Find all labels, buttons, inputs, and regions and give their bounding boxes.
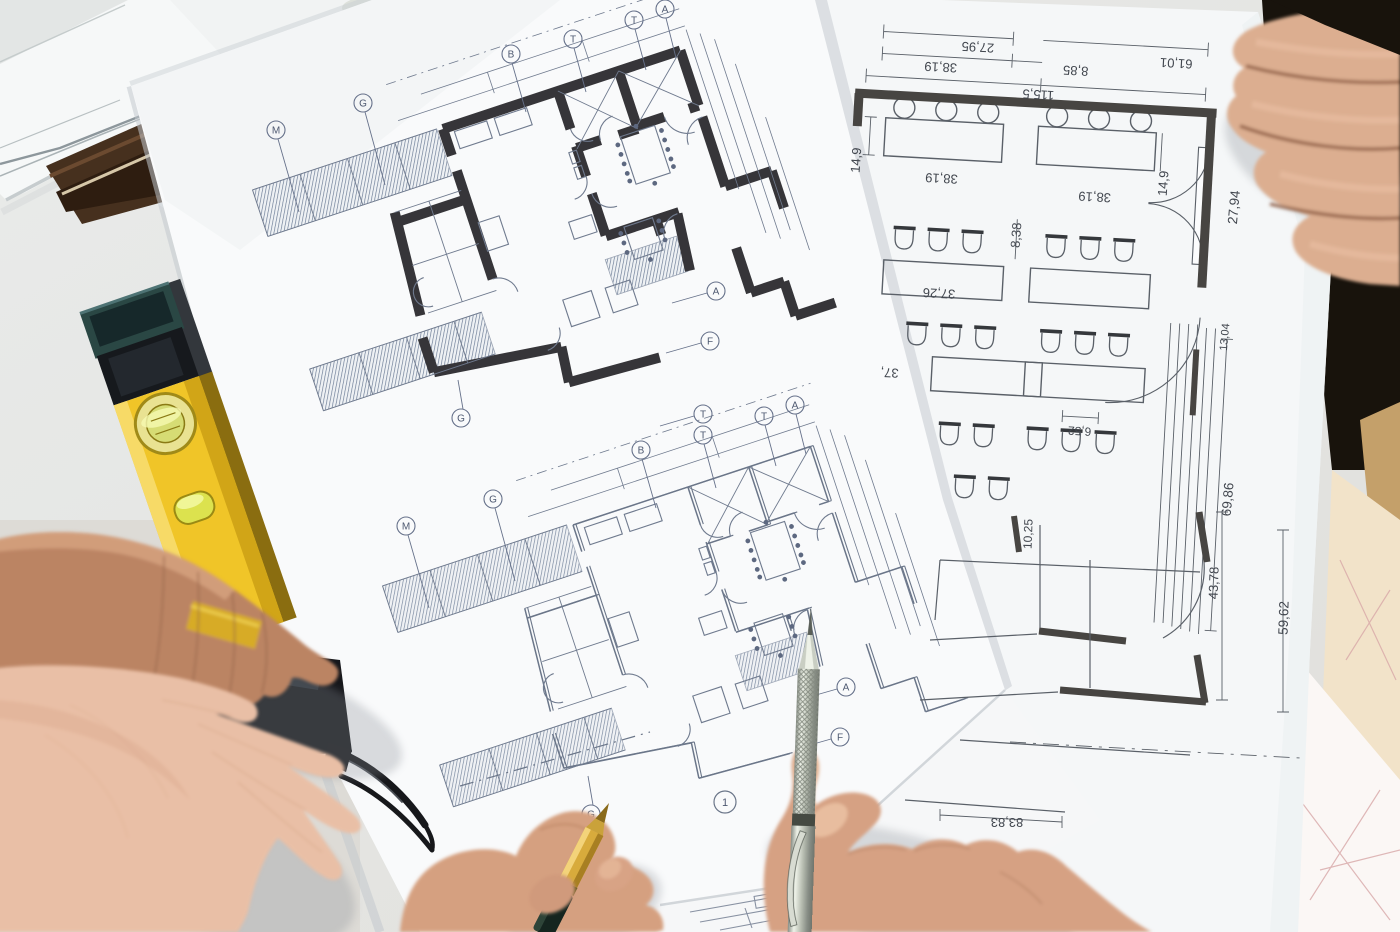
svg-text:14,9: 14,9	[847, 147, 864, 173]
svg-text:27,94: 27,94	[1225, 189, 1243, 224]
svg-text:38,19: 38,19	[925, 170, 958, 187]
svg-text:1: 1	[722, 797, 728, 809]
svg-text:61,01: 61,01	[1160, 55, 1193, 72]
svg-text:8,38: 8,38	[1008, 222, 1025, 248]
svg-text:13,04: 13,04	[1218, 323, 1232, 352]
svg-text:8,85: 8,85	[1063, 63, 1089, 79]
svg-text:83,83: 83,83	[991, 815, 1024, 830]
svg-text:115,5: 115,5	[1022, 86, 1054, 103]
svg-text:37,: 37,	[880, 365, 899, 381]
svg-text:37,26: 37,26	[922, 285, 955, 302]
svg-text:10,25: 10,25	[1021, 518, 1036, 549]
svg-text:27,95: 27,95	[961, 39, 994, 56]
svg-text:38,19: 38,19	[1078, 189, 1111, 206]
svg-text:6,52: 6,52	[1067, 423, 1091, 438]
svg-text:59,62: 59,62	[1275, 601, 1291, 635]
svg-text:38,19: 38,19	[924, 59, 957, 76]
svg-text:43,78: 43,78	[1206, 566, 1222, 599]
svg-text:14,9: 14,9	[1155, 170, 1172, 196]
